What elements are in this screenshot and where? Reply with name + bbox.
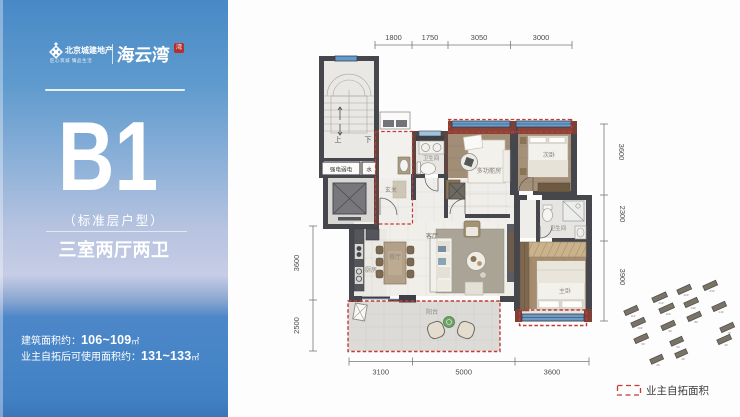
svg-text:13#: 13# [690, 306, 695, 310]
svg-text:3900: 3900 [618, 269, 627, 286]
svg-text:5000: 5000 [455, 368, 472, 377]
svg-text:强电弱电: 强电弱电 [330, 166, 353, 174]
svg-text:水: 水 [366, 166, 372, 174]
svg-text:10#: 10# [637, 326, 642, 330]
svg-text:3100: 3100 [372, 368, 389, 377]
svg-text:1750: 1750 [422, 33, 439, 42]
svg-text:11#: 11# [631, 314, 636, 318]
svg-text:3600: 3600 [544, 368, 561, 377]
svg-text:3600: 3600 [617, 144, 626, 161]
svg-text:3600: 3600 [292, 255, 301, 272]
svg-text:2300: 2300 [618, 206, 627, 223]
svg-text:玄关: 玄关 [385, 186, 397, 194]
svg-text:阳台: 阳台 [426, 308, 438, 316]
svg-text:23#: 23# [709, 289, 714, 293]
svg-text:12#: 12# [665, 312, 670, 316]
svg-text:22#: 22# [683, 293, 688, 297]
svg-text:主卧: 主卧 [559, 287, 571, 295]
svg-text:21#: 21# [658, 301, 663, 305]
svg-text:客厅: 客厅 [426, 232, 438, 240]
svg-text:7#: 7# [727, 331, 731, 335]
svg-text:1800: 1800 [385, 33, 402, 42]
svg-text:上: 上 [335, 135, 342, 144]
svg-text:2#: 2# [656, 363, 660, 367]
svg-text:3050: 3050 [471, 33, 488, 42]
svg-text:2500: 2500 [292, 317, 301, 334]
svg-text:5#: 5# [641, 342, 645, 346]
svg-text:多功能房: 多功能房 [477, 167, 502, 175]
svg-text:下: 下 [365, 136, 372, 144]
svg-text:3000: 3000 [533, 33, 550, 42]
svg-text:4#: 4# [724, 343, 728, 347]
svg-text:卫生间: 卫生间 [423, 154, 439, 162]
svg-text:8#: 8# [694, 320, 698, 324]
svg-text:厨房: 厨房 [365, 266, 377, 274]
svg-text:餐厅: 餐厅 [389, 253, 401, 261]
svg-text:卫生间: 卫生间 [550, 224, 566, 232]
svg-text:9#: 9# [668, 329, 672, 333]
svg-text:14#: 14# [718, 310, 723, 314]
svg-text:次卧: 次卧 [543, 151, 555, 159]
svg-text:6#: 6# [676, 345, 680, 349]
svg-text:3#: 3# [681, 357, 685, 361]
svg-text:业主自拓面积: 业主自拓面积 [646, 384, 709, 397]
